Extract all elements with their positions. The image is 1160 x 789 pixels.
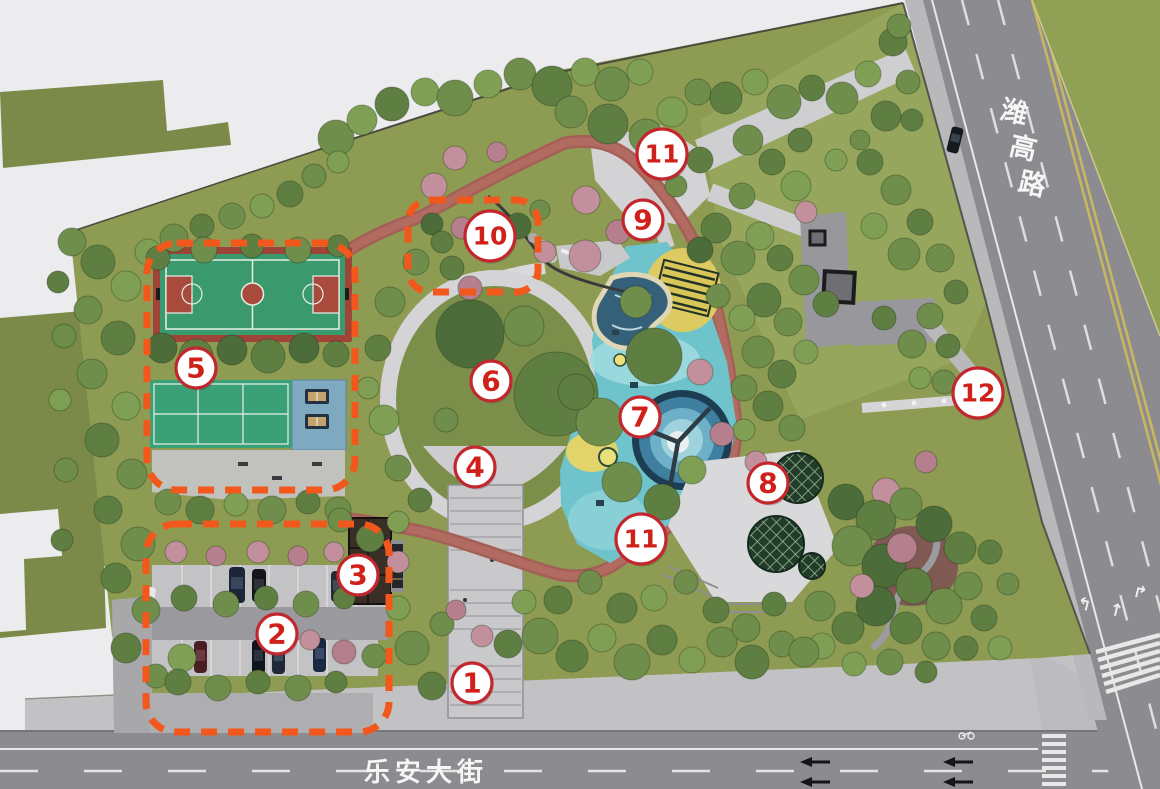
ping-pong-table [305,414,329,429]
tree [871,101,901,131]
flowering-tree [795,201,817,223]
flowering-tree [421,173,447,199]
marker-4: 4 [455,447,497,490]
tree [687,237,713,263]
tree [395,631,429,665]
tree [246,670,270,694]
tree [916,506,952,542]
tree [385,455,411,481]
tree [729,183,755,209]
tree [357,377,379,399]
tree [805,591,835,621]
tree [832,612,864,644]
flowering-tree [887,533,917,563]
tree [47,271,69,293]
tree [588,104,628,144]
tree [387,511,409,533]
tree [944,532,976,564]
tree [558,374,594,410]
tree [907,209,933,235]
tree [323,341,349,367]
flowering-tree [471,625,493,647]
tree [101,563,131,593]
flowering-tree [332,640,356,664]
svg-text:8: 8 [758,467,777,500]
tree [627,59,653,85]
tree [971,605,997,631]
tree [890,488,922,520]
tree [52,324,76,348]
tree [733,419,755,441]
flowering-tree [915,451,937,473]
tree [168,644,196,672]
tree [779,415,805,441]
tree [679,647,705,673]
tree [369,405,399,435]
svg-text:7: 7 [630,401,649,434]
flowering-tree [850,574,874,598]
tree [826,82,858,114]
tree [647,625,677,655]
tree [327,151,349,173]
tree [753,391,783,421]
svg-text:5: 5 [186,352,205,385]
tree [556,640,588,672]
tree [922,632,950,660]
tree [742,69,768,95]
flowering-tree [487,142,507,162]
tree [944,280,968,304]
marker-11: 11 [637,129,689,182]
tree [926,244,954,272]
tree [881,175,911,205]
marker-2: 2 [257,614,299,657]
tree [735,645,769,679]
flowering-tree [572,186,600,214]
tree [474,70,502,98]
svg-text:12: 12 [961,379,996,408]
svg-text:3: 3 [348,559,367,592]
tree [224,492,248,516]
tree [411,78,439,106]
tree [620,286,652,318]
tree [896,70,920,94]
tree [544,586,572,614]
flowering-tree [446,600,466,620]
tree [614,644,650,680]
tree [842,652,866,676]
svg-text:1: 1 [462,667,481,700]
tree [219,203,245,229]
flowering-tree [443,146,467,170]
tree [101,321,135,355]
svg-text:11: 11 [645,140,680,169]
tree [954,636,978,660]
svg-text:2: 2 [267,618,286,651]
tree [512,590,536,614]
tree [909,367,931,389]
tree [729,305,755,331]
tree [111,271,141,301]
tree [915,661,937,683]
tree [762,592,786,616]
crosswalk-south [1042,736,1066,784]
tree [687,147,713,173]
tree [365,335,391,361]
tree [362,644,386,668]
marker-9: 9 [623,200,665,243]
tree [890,612,922,644]
pavilion-canopy [748,516,804,572]
tree [165,669,191,695]
svg-text:11: 11 [624,525,659,554]
tree [504,306,544,346]
tree [799,75,825,101]
marker-6: 6 [471,361,513,404]
tree [171,585,197,611]
tree [731,375,757,401]
tree [855,61,881,87]
tree [657,97,687,127]
tree [54,458,78,482]
flowering-tree [165,541,187,563]
tree [703,597,729,623]
marker-7: 7 [620,397,662,440]
tree [746,222,774,250]
tree [111,633,141,663]
svg-text:6: 6 [481,365,500,398]
tree [602,462,642,502]
tree [678,456,706,484]
flowering-tree [687,359,713,385]
tree [887,14,911,38]
tree [277,181,303,207]
tree [81,245,115,279]
tree [190,214,214,238]
tree [555,96,587,128]
ping-pong-table [305,389,329,404]
tree [936,334,960,358]
tree [217,335,247,365]
tree [626,328,682,384]
tree [767,85,801,119]
tree [759,149,785,175]
tree [789,637,819,667]
marker-12: 12 [953,368,1005,421]
tree [328,508,352,532]
tree [888,238,920,270]
road-label-south: 乐安大街 [364,758,488,788]
tree [58,228,86,256]
park-master-plan: ↰ ↑ ↱ [0,0,1160,789]
tree [813,291,839,317]
tree [732,614,760,642]
tree [251,339,285,373]
marker-10: 10 [465,211,517,264]
tree [789,265,819,295]
tree [186,496,214,524]
svg-text:10: 10 [473,222,508,251]
tree [898,330,926,358]
flowering-tree [288,546,308,566]
flowering-tree [247,541,269,563]
tree [77,359,107,389]
tree [147,333,177,363]
tree [436,300,504,368]
tree [774,308,802,336]
tree [325,671,347,693]
flowering-tree [300,630,320,650]
tree [706,284,730,308]
tree [408,488,432,512]
flowering-tree [569,240,601,272]
tree [850,130,870,150]
tree [988,636,1012,660]
tree [112,392,140,420]
marker-8: 8 [748,463,790,506]
tree [418,672,446,700]
tree [877,649,903,675]
tree [794,340,818,364]
tree [431,231,453,253]
flowering-tree [458,276,482,300]
tree [768,360,796,388]
tree [285,675,311,701]
tree [205,675,231,701]
site-plan-canvas: ↰ ↑ ↱ [0,0,1160,789]
flowering-tree [206,546,226,566]
tree [872,306,896,330]
tree [302,164,326,188]
tree [685,79,711,105]
svg-text:4: 4 [465,451,484,484]
south-road [0,730,1160,789]
tree [978,540,1002,564]
tree [781,171,811,201]
tree [825,149,847,171]
tree [901,109,923,131]
tree [347,105,377,135]
tree [767,245,793,271]
tree [74,296,102,324]
tree [742,336,774,368]
tree [607,593,637,623]
tree [117,459,147,489]
tree [437,80,473,116]
tree [896,568,932,604]
tree [375,287,405,317]
svg-text:9: 9 [633,204,652,237]
tree [595,67,629,101]
tree [49,389,71,411]
tree [94,496,122,524]
tree [733,125,763,155]
tree [250,194,274,218]
marker-1: 1 [452,663,494,706]
tree [434,408,458,432]
tree [710,82,742,114]
tree [213,591,239,617]
tree [522,618,558,654]
tree [289,333,319,363]
tree [296,490,320,514]
pavilion-canopy [799,553,825,579]
tree [588,624,616,652]
tree [51,529,73,551]
tree [861,213,887,239]
tree [85,423,119,457]
tree [954,572,982,600]
marker-3: 3 [338,555,380,598]
flowering-tree [710,422,734,446]
tree [641,585,667,611]
tree [917,303,943,329]
tree [997,573,1019,595]
tree [578,570,602,594]
marker-11: 11 [616,514,668,567]
marker-5: 5 [176,348,218,391]
tree [788,128,812,152]
tree [258,496,286,524]
tree [293,591,319,617]
tree [494,630,522,658]
tree [674,570,698,594]
tree [375,87,409,121]
tree [440,256,464,280]
flowering-tree [324,542,344,562]
tree [857,149,883,175]
tree [504,58,536,90]
tree [254,586,278,610]
